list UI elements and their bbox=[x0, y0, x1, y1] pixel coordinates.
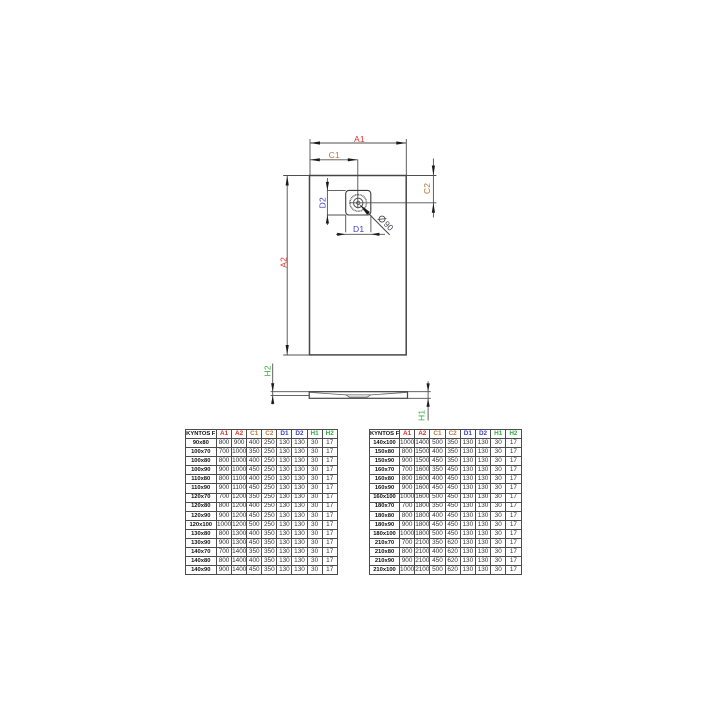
svg-text:C2: C2 bbox=[422, 183, 432, 194]
svg-text:A1: A1 bbox=[354, 134, 365, 144]
svg-text:D2: D2 bbox=[317, 197, 327, 208]
svg-text:C1: C1 bbox=[329, 150, 340, 160]
svg-text:H1: H1 bbox=[417, 410, 427, 421]
svg-text:H2: H2 bbox=[262, 365, 272, 376]
svg-text:D1: D1 bbox=[353, 224, 364, 234]
svg-text:A2: A2 bbox=[279, 257, 289, 268]
